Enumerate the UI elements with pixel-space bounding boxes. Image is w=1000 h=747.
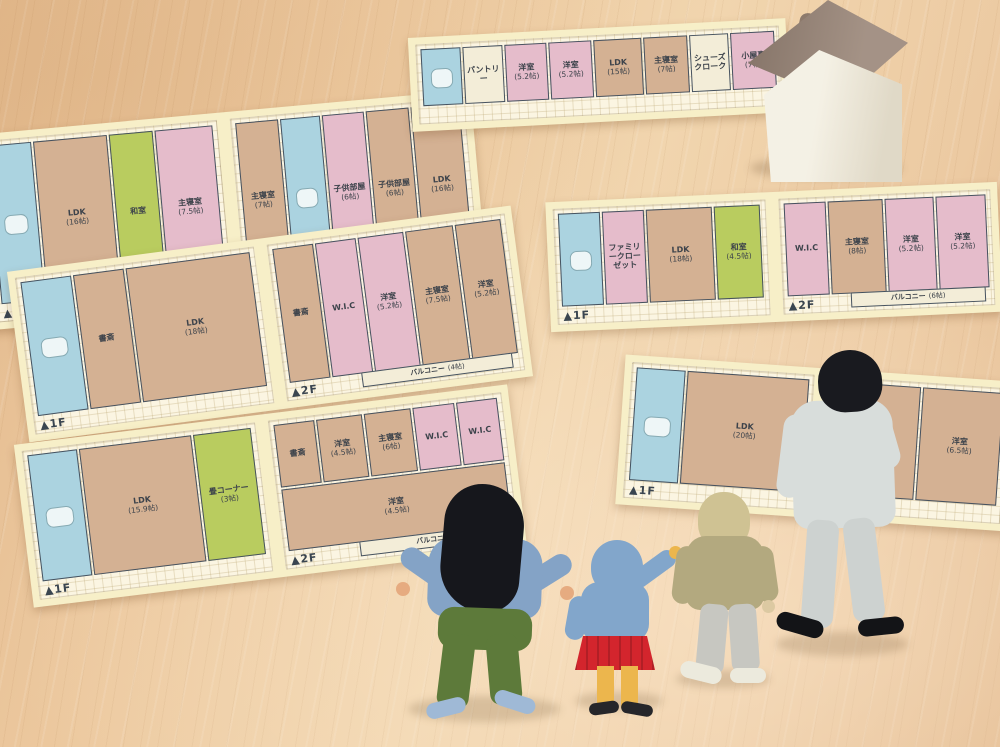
father-left-leg: [800, 519, 839, 629]
plan-room: W.I.C: [456, 398, 505, 465]
father-right-shoe: [857, 616, 905, 638]
plan-rooms: W.I.C主寝室(8帖)洋室(5.2帖)洋室(5.2帖)バルコニー(6帖): [783, 194, 990, 296]
room-size: (5.2帖): [898, 244, 924, 253]
room-size: (5.2帖): [514, 72, 540, 81]
plan-room: LDK(18帖): [125, 252, 267, 402]
father-jacket: [790, 398, 896, 529]
plan-panel: パントリー洋室(5.2帖)洋室(5.2帖)LDK(15帖)主寝室(7帖)シューズ…: [415, 26, 783, 125]
plan-rooms: 書斎LDK(18帖): [20, 252, 266, 416]
plan-room: 洋室(6.5帖): [915, 387, 1000, 505]
floor-marker: ▲1F: [44, 581, 72, 597]
plan-room: LDK(18帖): [646, 207, 716, 303]
daughter-skirt: [575, 636, 655, 670]
plan-room: ファミリークローゼット: [602, 210, 648, 305]
plan-room: 書斎: [273, 420, 322, 487]
wood-table-scene: LDK(16帖)和室主寝室(7.5帖)▲1F主寝室(7帖)子供部屋(6帖)子供部…: [0, 0, 1000, 747]
son-right-leg: [728, 603, 761, 673]
room-label: バルコニー: [410, 365, 446, 377]
plan-room: [629, 367, 686, 483]
room-size: (15.9帖): [128, 504, 159, 515]
room-label: バルコニー: [891, 293, 926, 302]
plan-rooms: 書斎W.I.C洋室(5.2帖)主寝室(7.5帖)洋室(5.2帖)バルコニー(4帖…: [272, 219, 518, 383]
plan-room: 主寝室(6帖): [364, 408, 418, 476]
plan-room: LDK(15帖): [593, 38, 644, 97]
room-label: W.I.C: [468, 425, 492, 437]
plan-room: W.I.C: [412, 403, 461, 470]
plan-room: 和室(4.5帖): [713, 205, 764, 300]
father-right-leg: [842, 516, 886, 623]
floor-marker: ▲2F: [788, 298, 815, 312]
son-right-shoe: [730, 668, 766, 683]
plan-room: 洋室(4.5帖): [316, 414, 369, 482]
room-size: (7帖): [657, 65, 676, 74]
plan-room: 主寝室(8帖): [828, 199, 886, 294]
plan-room: 洋室(5.2帖): [548, 40, 593, 99]
floor-marker: ▲1F: [39, 415, 67, 431]
father-hair: [816, 348, 884, 414]
daughter-jacket: [581, 582, 649, 642]
room-size: (5.2帖): [950, 242, 976, 251]
room-label: ファミリークローゼット: [605, 243, 644, 272]
room-size: (7.5帖): [178, 207, 204, 217]
room-label: W.I.C: [332, 302, 356, 314]
room-size: (20帖): [732, 431, 755, 440]
figure-daughter: [563, 540, 675, 712]
figure-shadow: [776, 632, 908, 656]
room-size: (3帖): [220, 494, 239, 504]
room-size: (5.2帖): [474, 288, 500, 299]
room-size: (18帖): [185, 326, 209, 337]
figure-father: [768, 350, 914, 655]
plan-panel: ファミリークローゼットLDK(18帖)和室(4.5帖)▲1F: [553, 199, 771, 325]
plan-room: LDK(15.9帖): [79, 435, 206, 575]
room-size: (4.5帖): [726, 252, 752, 261]
plan-room: シューズクローク: [689, 33, 732, 92]
plan-room: [558, 212, 604, 307]
room-size: (6帖): [928, 292, 945, 300]
room-size: (5.2帖): [377, 301, 403, 312]
room-size: (7帖): [254, 200, 273, 209]
plan-panel: W.I.C主寝室(8帖)洋室(5.2帖)洋室(5.2帖)バルコニー(6帖)▲2F: [778, 189, 996, 315]
room-label: W.I.C: [795, 244, 818, 254]
floor-plan-middle-right: ファミリークローゼットLDK(18帖)和室(4.5帖)▲1FW.I.C主寝室(8…: [545, 182, 1000, 332]
plan-panel: 書斎LDK(18帖)▲1F: [15, 247, 274, 435]
daughter-left-shoe: [588, 700, 619, 716]
room-size: (4帖): [447, 363, 465, 372]
figure-son: [666, 492, 780, 690]
plan-rooms: LDK(15.9帖)畳コーナー(3帖): [27, 428, 266, 581]
room-label: パントリー: [465, 65, 502, 85]
room-size: (15帖): [607, 67, 630, 76]
plan-room: 洋室(5.2帖): [504, 43, 549, 102]
room-size: (6.5帖): [946, 446, 972, 456]
room-label: W.I.C: [425, 431, 449, 443]
mother-hair: [437, 481, 528, 615]
figure-mother: [398, 482, 576, 727]
son-shirt: [686, 536, 764, 610]
plan-room: 主寝室(7帖): [643, 35, 689, 94]
room-label: 書斎: [292, 308, 309, 319]
plan-panel: 書斎W.I.C洋室(5.2帖)主寝室(7.5帖)洋室(5.2帖)バルコニー(4帖…: [266, 213, 525, 401]
plan-room: [420, 47, 463, 106]
plan-rooms: パントリー洋室(5.2帖)洋室(5.2帖)LDK(15帖)主寝室(7帖)シューズ…: [420, 31, 776, 106]
room-size: (4.5帖): [330, 447, 356, 458]
plan-room: パントリー: [462, 45, 505, 104]
floor-marker: ▲1F: [563, 308, 590, 322]
floor-marker: ▲1F: [629, 483, 656, 498]
room-size: (8帖): [848, 247, 866, 256]
room-label: 書斎: [98, 333, 115, 344]
floor-marker: ▲2F: [290, 551, 318, 567]
room-size: (5.2帖): [558, 70, 584, 79]
room-size: (6帖): [341, 192, 360, 201]
floor-marker: ▲2F: [291, 382, 319, 398]
plan-room: 洋室(5.2帖): [936, 194, 990, 289]
room-size: (7.5帖): [425, 294, 451, 305]
room-size: (6帖): [386, 188, 405, 197]
plan-rooms: ファミリークローゼットLDK(18帖)和室(4.5帖): [558, 205, 765, 307]
room-size: (16帖): [66, 217, 90, 227]
room-label: 書斎: [289, 448, 306, 459]
room-size: (18帖): [669, 255, 692, 264]
plan-room: W.I.C: [783, 202, 830, 297]
room-size: (6帖): [382, 442, 401, 452]
plan-panel: LDK(15.9帖)畳コーナー(3帖)▲1F: [22, 422, 274, 600]
room-size: (16帖): [431, 184, 455, 194]
room-label: 和室: [130, 207, 147, 217]
mother-left-hand: [396, 582, 410, 596]
plan-room: 洋室(5.2帖): [884, 197, 938, 292]
floor-plan-top-middle: パントリー洋室(5.2帖)洋室(5.2帖)LDK(15帖)主寝室(7帖)シューズ…: [408, 18, 790, 132]
house-model: [746, 0, 914, 186]
room-label: シューズクローク: [692, 53, 729, 73]
